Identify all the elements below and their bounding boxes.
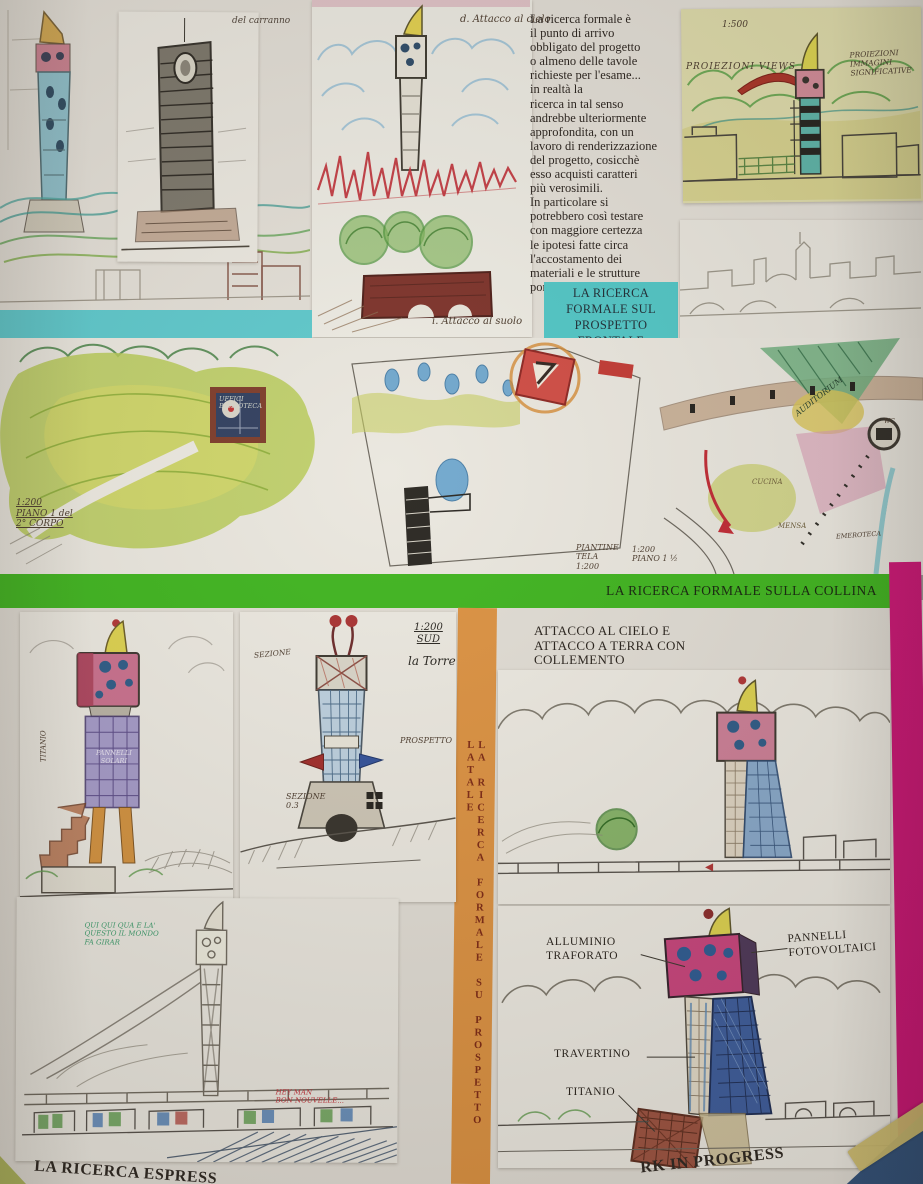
tower: [789, 34, 824, 174]
material-label-alluminio: ALLUMINIO TRAFORATO: [546, 936, 618, 963]
intro-paragraph: La ricerca formale è il punto di arrivo …: [530, 12, 684, 294]
handwritten-wc: WC: [884, 418, 895, 425]
attacco-caption: ATTACCO AL CIELO E ATTACCO A TERRA CON C…: [534, 624, 724, 668]
handwritten-attacco-suolo: i. Attacco al suolo: [432, 316, 522, 328]
pencil-tower-panel: [117, 12, 258, 263]
colour-tower-panel-west: PANNELLI SOLARI TITANIO: [20, 612, 233, 902]
photovoltaic-shaft: [709, 997, 771, 1116]
ground-lines: [0, 270, 310, 302]
right-plan: [660, 338, 923, 574]
handwritten-sezione-b: SEZIONE 0.3: [286, 792, 325, 811]
material-label-titanio: TITANIO: [566, 1086, 615, 1098]
red-swoosh: [738, 73, 802, 95]
left-hill-plan: [0, 353, 315, 564]
handwritten-titanio-side: TITANIO: [40, 730, 48, 761]
faint-skyline-sketch: [680, 220, 921, 343]
cloud-elevation-panel: [498, 670, 890, 904]
handwritten-prospetto: PROSPETTO: [400, 736, 452, 745]
ground-buildings: [498, 835, 890, 873]
handwritten-pannelli-solari: PANNELLI SOLARI: [96, 750, 132, 765]
banner-prospetto-laterale: LA RICERCA FORMALE SU PROSPETTO LATALE: [460, 740, 487, 1180]
handwritten-proiezioni-views: PROIEZIONI VIEWS: [686, 62, 796, 73]
cloud-elevation-sketch: [498, 670, 890, 904]
banner-collina: LA RICERCA FORMALE SULLA COLLINA: [606, 574, 877, 608]
tower: [717, 676, 791, 857]
handwritten-proiezioni-immagini: PROIEZIONI IMMAGINI SIGNIFICATIVE: [849, 48, 912, 78]
green-band: LA RICERCA FORMALE SULLA COLLINA: [0, 574, 891, 608]
frontal-elevation-sketch: [312, 0, 530, 338]
handwritten-piantine: PIANTINE TELA 1:200: [576, 543, 619, 571]
cyan-band: [0, 310, 312, 338]
frontal-elevation-panel: [312, 0, 532, 337]
trees: [340, 212, 472, 268]
handwritten-scale-1500: 1:500: [722, 20, 748, 31]
orange-band: LA RICERCA FORMALE SU PROSPETTO LATALE: [451, 608, 497, 1184]
handwritten-green-note: QUI QUI QUA E LA' QUESTO IL MONDO FA GIR…: [84, 921, 158, 946]
handwritten-piano-15: 1:200 PIANO 1 ½: [632, 545, 678, 564]
materials-diagram-panel: ALLUMINIO TRAFORATO PANNELLI FOTOVOLTAIC…: [498, 906, 890, 1168]
handwritten-piano-corpo: 1:200 PIANO 1 del 2° CORPO: [16, 498, 73, 530]
pink-band: [889, 562, 923, 1142]
handwritten-uffici-biblioteca: UFFICI BIBLIOTECA: [219, 396, 262, 410]
handwritten-mensa: MENSA: [778, 522, 806, 530]
handwritten-cucina: CUCINA: [752, 478, 783, 486]
tower: [396, 6, 426, 170]
middle-plan: [352, 344, 640, 566]
tree: [597, 809, 637, 849]
pencil-perspective-sketch: [15, 897, 398, 1163]
handwritten-panel-b-title: del carranno: [232, 16, 290, 27]
hill-plans-panel: [0, 338, 923, 575]
handwritten-red-note: HEY MAN BON NOUVELLE...: [276, 1088, 344, 1105]
yellow-elevation-panel: [681, 7, 923, 204]
handwritten-la-torre: la Torre: [408, 654, 456, 668]
cloud-outline: [498, 700, 890, 729]
pencil-perspective-panel: QUI QUI QUA E LA' QUESTO IL MONDO FA GIR…: [15, 897, 398, 1163]
yellow-elevation-sketch: [681, 7, 921, 201]
material-label-travertino: TRAVERTINO: [554, 1048, 630, 1060]
hill-plans-sketch: [0, 338, 923, 574]
pencil-tower-sketch: [117, 12, 255, 258]
photo-architecture-poster: …la O…: [0, 0, 923, 1184]
faint-skyline-panel: [680, 220, 923, 346]
tower-head: [663, 906, 759, 1001]
handwritten-scala-sud: 1:200 SUD: [414, 622, 443, 646]
